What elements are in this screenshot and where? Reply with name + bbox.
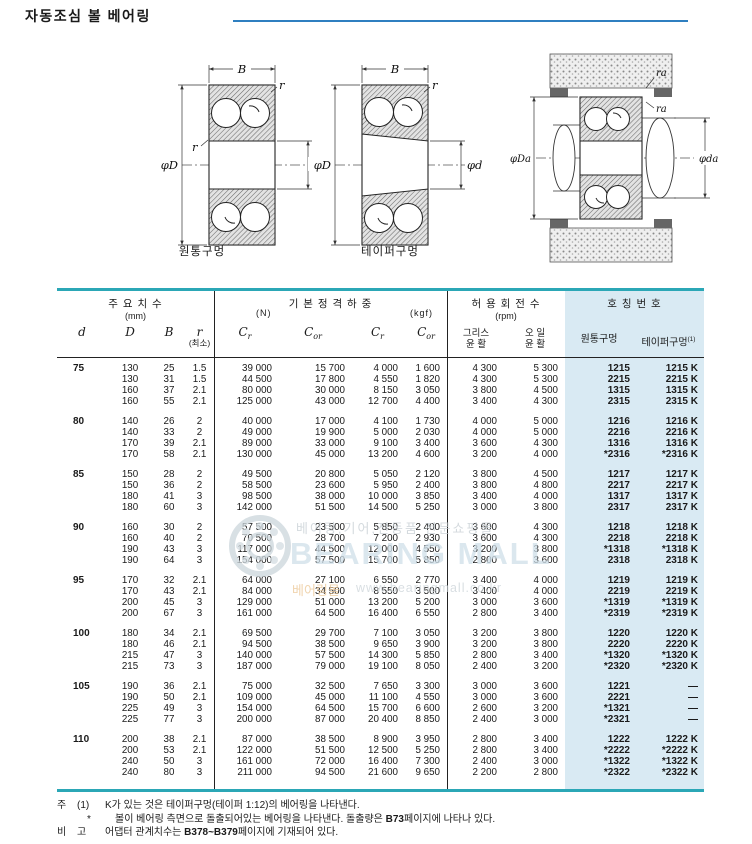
cell-cr-kgf: 7 650 — [350, 681, 405, 692]
dim-phida-label: φda — [699, 154, 718, 165]
table-header: 주 요 치 수 (mm) 기 본 정 격 하 중 (N) (kgf) 허 용 회… — [57, 291, 704, 358]
cell-cr-n: 94 500 — [214, 639, 276, 650]
cell-cyl-bore: 1219 — [565, 575, 633, 586]
table-row: 110200382.187 00038 5008 9003 9502 8003 … — [57, 734, 704, 745]
cell-d — [57, 756, 107, 767]
cell-cor-n: 30 000 — [276, 385, 350, 396]
cell-cyl-bore: 2216 — [565, 427, 633, 438]
cell-cr-n: 89 000 — [214, 438, 276, 449]
cell-cor-n: 23 600 — [276, 480, 350, 491]
cell-cor-n: 64 500 — [276, 703, 350, 714]
col-oil: 오 일윤 활 — [505, 323, 565, 357]
col-grease: 그리스윤 활 — [447, 323, 505, 357]
cell-cr-kgf: 5 950 — [350, 480, 405, 491]
cell-cyl-bore: 2315 — [565, 396, 633, 407]
cell-taper-bore: — — [633, 714, 704, 725]
cell-r: 2 — [185, 533, 214, 544]
cell-taper-bore: *2316 K — [633, 449, 704, 460]
cell-taper-bore: *1318 K — [633, 544, 704, 555]
cell-r: 2.1 — [185, 681, 214, 692]
cell-D: 130 — [107, 363, 153, 374]
cell-cr-n: 70 500 — [214, 533, 276, 544]
catalog-page: { "page": { "title": "자동조심 볼 베어링" }, "di… — [0, 0, 752, 844]
cell-taper-bore: *2319 K — [633, 608, 704, 619]
table-row: 200453129 00051 00013 2005 2003 0003 600… — [57, 597, 704, 608]
cell-cor-n: 57 500 — [276, 650, 350, 661]
cell-cr-n: 200 000 — [214, 714, 276, 725]
diagram-mounted-bearing: ra ra φDa φda — [508, 52, 723, 264]
cell-cr-kgf: 8 900 — [350, 734, 405, 745]
cell-D: 140 — [107, 416, 153, 427]
cell-cor-kgf: 5 850 — [405, 650, 447, 661]
cell-oil: 3 400 — [505, 734, 565, 745]
cell-r: 3 — [185, 756, 214, 767]
cell-oil: 4 000 — [505, 586, 565, 597]
table-row: 160552.1125 00043 00012 7004 4003 4004 3… — [57, 396, 704, 407]
cell-cor-kgf: 5 250 — [405, 745, 447, 756]
cell-d — [57, 480, 107, 491]
table-row: 240803211 00094 50021 6009 6502 2002 800… — [57, 767, 704, 778]
table-row: 130311.544 50017 8004 5501 8204 3005 300… — [57, 374, 704, 385]
cell-B: 33 — [153, 427, 185, 438]
cell-taper-bore: *2322 K — [633, 767, 704, 778]
cell-grease: 3 000 — [447, 692, 505, 703]
cell-r: 3 — [185, 544, 214, 555]
cell-cyl-bore: *2322 — [565, 767, 633, 778]
cell-cyl-bore: *1320 — [565, 650, 633, 661]
dim-B-label: B — [390, 62, 399, 76]
bearing-spec-table: 주 요 치 수 (mm) 기 본 정 격 하 중 (N) (kgf) 허 용 회… — [57, 288, 704, 792]
cell-grease: 3 800 — [447, 480, 505, 491]
cell-B: 46 — [153, 639, 185, 650]
cell-cor-kgf: 3 300 — [405, 681, 447, 692]
cell-cyl-bore: 1220 — [565, 628, 633, 639]
cell-r: 3 — [185, 608, 214, 619]
cell-cor-n: 94 500 — [276, 767, 350, 778]
cell-D: 130 — [107, 374, 153, 385]
cell-D: 200 — [107, 745, 153, 756]
header-limiting-speed: 허 용 회 전 수 (rpm) — [447, 291, 565, 323]
cell-D: 200 — [107, 597, 153, 608]
cell-taper-bore: 2220 K — [633, 639, 704, 650]
cell-B: 41 — [153, 491, 185, 502]
cell-D: 150 — [107, 469, 153, 480]
cell-cor-n: 15 700 — [276, 363, 350, 374]
cell-taper-bore: *1320 K — [633, 650, 704, 661]
cell-d — [57, 661, 107, 672]
cell-taper-bore: 2317 K — [633, 502, 704, 513]
cell-D: 160 — [107, 522, 153, 533]
cell-cyl-bore: 1315 — [565, 385, 633, 396]
cell-cor-kgf: 9 650 — [405, 767, 447, 778]
cell-taper-bore: 2217 K — [633, 480, 704, 491]
cell-cr-kgf: 6 550 — [350, 575, 405, 586]
col-cr-kgf: Cr — [350, 323, 405, 357]
table-row: 100180342.169 50029 7007 1003 0503 2003 … — [57, 628, 704, 639]
cell-cor-kgf: 1 730 — [405, 416, 447, 427]
cell-cyl-bore: *2321 — [565, 714, 633, 725]
cell-cor-kgf: 2 400 — [405, 522, 447, 533]
cell-cor-kgf: 2 400 — [405, 480, 447, 491]
cell-cor-n: 32 500 — [276, 681, 350, 692]
cell-taper-bore: 1218 K — [633, 522, 704, 533]
col-cylindrical-bore: 원통구멍 — [565, 323, 633, 357]
cell-r: 3 — [185, 661, 214, 672]
cell-cr-n: 161 000 — [214, 608, 276, 619]
cell-B: 60 — [153, 502, 185, 513]
cell-d — [57, 544, 107, 555]
cell-cor-kgf: 3 050 — [405, 385, 447, 396]
cell-r: 2 — [185, 469, 214, 480]
cell-cr-kgf: 13 200 — [350, 597, 405, 608]
table-row: 8014026240 00017 0004 1001 7304 0005 000… — [57, 416, 704, 427]
cell-cor-kgf: 4 600 — [405, 449, 447, 460]
cell-cr-n: 140 000 — [214, 650, 276, 661]
cell-oil: 4 500 — [505, 469, 565, 480]
cell-cor-n: 38 500 — [276, 639, 350, 650]
cell-oil: 3 400 — [505, 608, 565, 619]
cell-oil: 4 000 — [505, 491, 565, 502]
cell-taper-bore: 1217 K — [633, 469, 704, 480]
cell-cr-kgf: 12 000 — [350, 544, 405, 555]
footnote-3: 비 고 어댑터 관계치수는 B378~B379페이지에 기재되어 있다. — [57, 826, 705, 840]
cell-r: 2.1 — [185, 639, 214, 650]
cell-d: 95 — [57, 575, 107, 586]
cell-oil: 3 800 — [505, 639, 565, 650]
cell-cr-kgf: 8 550 — [350, 586, 405, 597]
table-row: 200532.1122 00051 50012 5005 2502 8003 4… — [57, 745, 704, 756]
cell-r: 3 — [185, 491, 214, 502]
cell-r: 3 — [185, 597, 214, 608]
cell-r: 2.1 — [185, 385, 214, 396]
cell-cyl-bore: 1218 — [565, 522, 633, 533]
cell-grease: 3 400 — [447, 491, 505, 502]
cell-r: 2 — [185, 480, 214, 491]
cell-B: 53 — [153, 745, 185, 756]
table-row: 200673161 00064 50016 4006 5502 8003 400… — [57, 608, 704, 619]
cell-D: 160 — [107, 533, 153, 544]
cell-r: 2.1 — [185, 586, 214, 597]
cell-grease: 4 000 — [447, 416, 505, 427]
cell-cr-n: 154 000 — [214, 703, 276, 714]
cell-cyl-bore: 1317 — [565, 491, 633, 502]
table-row: 75130251.539 00015 7004 0001 6004 3005 3… — [57, 363, 704, 374]
col-B: B — [153, 323, 185, 357]
cell-cor-kgf: 7 300 — [405, 756, 447, 767]
cell-cyl-bore: 2318 — [565, 555, 633, 566]
table-row: 240503161 00072 00016 4007 3002 4003 000… — [57, 756, 704, 767]
cell-cyl-bore: *1322 — [565, 756, 633, 767]
cell-D: 225 — [107, 703, 153, 714]
cell-cr-kgf: 8 150 — [350, 385, 405, 396]
dim-B-label: B — [237, 62, 246, 76]
title-rule — [233, 20, 688, 22]
cell-cor-n: 27 100 — [276, 575, 350, 586]
cell-taper-bore: — — [633, 692, 704, 703]
cell-B: 38 — [153, 734, 185, 745]
cell-taper-bore: 2216 K — [633, 427, 704, 438]
cell-d — [57, 396, 107, 407]
cell-cor-n: 44 500 — [276, 544, 350, 555]
cell-r: 2.1 — [185, 575, 214, 586]
cell-cor-kgf: 3 850 — [405, 491, 447, 502]
section-divider — [447, 291, 448, 789]
cell-D: 170 — [107, 438, 153, 449]
cell-D: 140 — [107, 427, 153, 438]
cell-r: 3 — [185, 703, 214, 714]
cell-cor-kgf: 5 200 — [405, 597, 447, 608]
cell-grease: 3 000 — [447, 597, 505, 608]
cell-cyl-bore: 2221 — [565, 692, 633, 703]
bearing-group-d90: 9016030257 50023 5005 8502 4003 6004 300… — [57, 522, 704, 566]
table-groups: 75130251.539 00015 7004 0001 6004 3005 3… — [57, 358, 704, 789]
cell-d — [57, 703, 107, 714]
cell-B: 73 — [153, 661, 185, 672]
cell-d — [57, 608, 107, 619]
cell-taper-bore: 2318 K — [633, 555, 704, 566]
cell-d — [57, 374, 107, 385]
table-row: 215473140 00057 50014 3005 8502 8003 400… — [57, 650, 704, 661]
table-row: 225773200 00087 00020 4008 8502 4003 000… — [57, 714, 704, 725]
cell-taper-bore: *1319 K — [633, 597, 704, 608]
cell-grease: 3 000 — [447, 681, 505, 692]
dim-ra-label: ra — [656, 104, 667, 115]
cell-cr-kgf: 10 000 — [350, 491, 405, 502]
cell-cor-kgf: 2 770 — [405, 575, 447, 586]
header-dimensions: 주 요 치 수 (mm) — [57, 291, 214, 323]
cell-cor-kgf: 4 400 — [405, 396, 447, 407]
cell-grease: 2 800 — [447, 745, 505, 756]
cell-cor-kgf: 3 500 — [405, 586, 447, 597]
cell-grease: 2 800 — [447, 650, 505, 661]
cell-cor-kgf: 2 930 — [405, 533, 447, 544]
table-row: 160372.180 00030 0008 1503 0503 8004 500… — [57, 385, 704, 396]
cell-cyl-bore: 1316 — [565, 438, 633, 449]
cell-grease: 3 200 — [447, 628, 505, 639]
dim-phiDa-label: φDa — [510, 154, 531, 165]
bearing-group-d110: 110200382.187 00038 5008 9003 9502 8003 … — [57, 734, 704, 778]
cell-cor-kgf: 3 900 — [405, 639, 447, 650]
cell-r: 1.5 — [185, 363, 214, 374]
table-row: 18041398 50038 00010 0003 8503 4004 0001… — [57, 491, 704, 502]
cell-oil: 5 300 — [505, 374, 565, 385]
table-row: 14033249 00019 9005 0002 0304 0005 00022… — [57, 427, 704, 438]
cell-cr-n: 87 000 — [214, 734, 276, 745]
cell-cor-n: 20 800 — [276, 469, 350, 480]
col-cr-n: Cr — [214, 323, 276, 357]
cell-cyl-bore: *2222 — [565, 745, 633, 756]
cell-taper-bore: 1216 K — [633, 416, 704, 427]
cell-taper-bore: 1215 K — [633, 363, 704, 374]
cell-D: 170 — [107, 575, 153, 586]
table-row: 170582.1130 00045 00013 2004 6003 2004 0… — [57, 449, 704, 460]
cell-cor-kgf: 3 950 — [405, 734, 447, 745]
cell-cor-n: 43 000 — [276, 396, 350, 407]
cell-cyl-bore: 2217 — [565, 480, 633, 491]
cell-d — [57, 586, 107, 597]
cell-cor-n: 17 800 — [276, 374, 350, 385]
cell-grease: 3 000 — [447, 502, 505, 513]
caption-cylindrical-bore: 원통구멍 — [152, 243, 252, 259]
cell-oil: 4 500 — [505, 385, 565, 396]
cell-cr-n: 125 000 — [214, 396, 276, 407]
section-divider — [214, 291, 215, 789]
cell-oil: 3 800 — [505, 628, 565, 639]
dim-phiD-label: φD — [314, 158, 331, 172]
cell-cr-n: 142 000 — [214, 502, 276, 513]
cell-d — [57, 692, 107, 703]
cell-cor-n: 51 500 — [276, 745, 350, 756]
cell-d — [57, 597, 107, 608]
table-row: 225493154 00064 50015 7006 6002 6003 200… — [57, 703, 704, 714]
page-title: 자동조심 볼 베어링 — [25, 6, 151, 26]
cell-d — [57, 449, 107, 460]
cell-oil: 4 300 — [505, 533, 565, 544]
cell-oil: 3 600 — [505, 681, 565, 692]
cell-d — [57, 639, 107, 650]
cell-cor-kgf: 2 120 — [405, 469, 447, 480]
dim-r-label: r — [279, 78, 286, 92]
cell-d — [57, 438, 107, 449]
cell-cor-n: 51 500 — [276, 502, 350, 513]
cell-d — [57, 427, 107, 438]
cell-d — [57, 385, 107, 396]
cell-B: 43 — [153, 544, 185, 555]
cell-cyl-bore: *1321 — [565, 703, 633, 714]
cell-cr-kgf: 9 100 — [350, 438, 405, 449]
cell-cor-n: 33 000 — [276, 438, 350, 449]
cell-oil: 3 600 — [505, 555, 565, 566]
cell-oil: 5 000 — [505, 427, 565, 438]
cell-oil: 3 000 — [505, 714, 565, 725]
cell-B: 67 — [153, 608, 185, 619]
cell-grease: 3 600 — [447, 438, 505, 449]
cell-grease: 2 200 — [447, 767, 505, 778]
cell-grease: 4 300 — [447, 363, 505, 374]
cell-d: 110 — [57, 734, 107, 745]
col-cor-n: Cor — [276, 323, 350, 357]
cell-cr-n: 49 000 — [214, 427, 276, 438]
cell-d: 75 — [57, 363, 107, 374]
cell-cor-kgf: 1 600 — [405, 363, 447, 374]
cell-cyl-bore: 2215 — [565, 374, 633, 385]
cell-oil: 3 800 — [505, 544, 565, 555]
cell-cr-kgf: 9 650 — [350, 639, 405, 650]
cell-cr-kgf: 5 000 — [350, 427, 405, 438]
cell-taper-bore: 2219 K — [633, 586, 704, 597]
cell-B: 32 — [153, 575, 185, 586]
cell-cor-n: 34 500 — [276, 586, 350, 597]
cell-D: 200 — [107, 734, 153, 745]
cell-grease: 2 600 — [447, 703, 505, 714]
cell-r: 2.1 — [185, 396, 214, 407]
cell-taper-bore: *2222 K — [633, 745, 704, 756]
cell-taper-bore: 1219 K — [633, 575, 704, 586]
cell-grease: 3 400 — [447, 586, 505, 597]
cell-cr-n: 129 000 — [214, 597, 276, 608]
footnote-1: 주 (1) K가 있는 것은 테이퍼구멍(테이퍼 1:12)의 베어링을 나타낸… — [57, 799, 705, 813]
cell-r: 2.1 — [185, 438, 214, 449]
cell-cr-kgf: 4 000 — [350, 363, 405, 374]
cell-B: 80 — [153, 767, 185, 778]
cell-d — [57, 491, 107, 502]
cell-grease: 3 200 — [447, 544, 505, 555]
cell-grease: 2 800 — [447, 555, 505, 566]
cell-cor-n: 51 000 — [276, 597, 350, 608]
cell-cor-n: 72 000 — [276, 756, 350, 767]
cell-grease: 3 200 — [447, 449, 505, 460]
col-r: r(최소) — [185, 323, 214, 357]
cell-cyl-bore: 1222 — [565, 734, 633, 745]
table-row: 180603142 00051 50014 5005 2503 0003 800… — [57, 502, 704, 513]
cell-oil: 3 800 — [505, 502, 565, 513]
cell-D: 240 — [107, 756, 153, 767]
cell-cr-n: 98 500 — [214, 491, 276, 502]
cell-cr-n: 40 000 — [214, 416, 276, 427]
cell-D: 170 — [107, 449, 153, 460]
cell-B: 39 — [153, 438, 185, 449]
col-D: D — [107, 323, 153, 357]
cell-B: 47 — [153, 650, 185, 661]
cell-cr-kgf: 19 100 — [350, 661, 405, 672]
col-cor-kgf: Cor — [405, 323, 447, 357]
table-row: 170392.189 00033 0009 1003 4003 6004 300… — [57, 438, 704, 449]
cell-cr-kgf: 7 100 — [350, 628, 405, 639]
cell-oil: 5 000 — [505, 416, 565, 427]
cell-cor-kgf: 6 600 — [405, 703, 447, 714]
cell-cr-kgf: 15 700 — [350, 555, 405, 566]
cell-taper-bore: 1317 K — [633, 491, 704, 502]
cell-B: 34 — [153, 628, 185, 639]
cell-B: 55 — [153, 396, 185, 407]
bearing-group-d100: 100180342.169 50029 7007 1003 0503 2003 … — [57, 628, 704, 672]
bearing-group-d75: 75130251.539 00015 7004 0001 6004 3005 3… — [57, 363, 704, 407]
cell-r: 2 — [185, 427, 214, 438]
cell-d — [57, 555, 107, 566]
cell-oil: 3 600 — [505, 597, 565, 608]
cell-taper-bore: 1316 K — [633, 438, 704, 449]
cell-D: 190 — [107, 692, 153, 703]
cell-oil: 5 300 — [505, 363, 565, 374]
cell-cor-n: 45 000 — [276, 692, 350, 703]
cell-oil: 3 200 — [505, 703, 565, 714]
cell-r: 2.1 — [185, 745, 214, 756]
cell-d: 105 — [57, 681, 107, 692]
cell-d — [57, 745, 107, 756]
cell-taper-bore: 1220 K — [633, 628, 704, 639]
cell-cr-n: 84 000 — [214, 586, 276, 597]
cell-cyl-bore: 2317 — [565, 502, 633, 513]
cell-D: 170 — [107, 586, 153, 597]
cell-grease: 2 400 — [447, 714, 505, 725]
cell-oil: 4 800 — [505, 480, 565, 491]
cell-cr-n: 154 000 — [214, 555, 276, 566]
header-load-ratings: 기 본 정 격 하 중 (N) (kgf) — [214, 291, 447, 323]
cell-cr-n: 64 000 — [214, 575, 276, 586]
footnotes: 주 (1) K가 있는 것은 테이퍼구멍(테이퍼 1:12)의 베어링을 나타낸… — [57, 799, 705, 840]
cell-cor-kgf: 8 050 — [405, 661, 447, 672]
cell-B: 49 — [153, 703, 185, 714]
cell-d: 80 — [57, 416, 107, 427]
cell-B: 45 — [153, 597, 185, 608]
header-bearing-numbers: 호 칭 번 호 — [565, 291, 704, 323]
cell-cor-kgf: 1 820 — [405, 374, 447, 385]
cell-cr-kgf: 20 400 — [350, 714, 405, 725]
cell-D: 180 — [107, 628, 153, 639]
cell-taper-bore: *1322 K — [633, 756, 704, 767]
cell-grease: 2 400 — [447, 661, 505, 672]
cell-B: 43 — [153, 586, 185, 597]
